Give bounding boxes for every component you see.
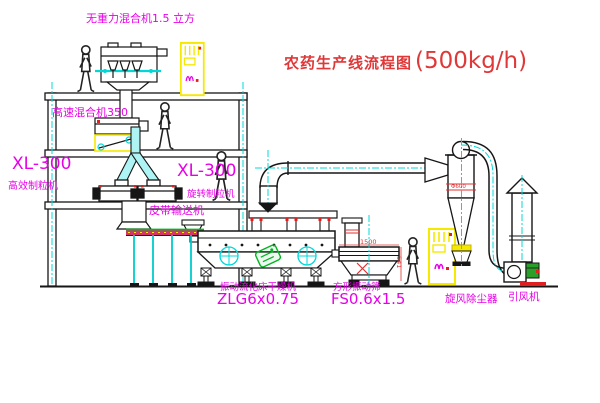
draft-fan-machine <box>504 262 546 286</box>
label-granulator-right-name: 旋转制粒机 <box>187 190 235 200</box>
dryer-exhaust-duct <box>255 150 432 205</box>
person-figure <box>77 46 94 92</box>
diagram-title: 农药生产线流程图 (500kg/h) <box>284 48 527 74</box>
process-flow-diagram: 农药生产线流程图 (500kg/h) 无重力混合机1.5 立方 高速混合机350… <box>0 0 600 403</box>
label-granulator-right-model: XL-300 <box>177 163 236 180</box>
fluid-bed-dryer-machine <box>198 203 337 286</box>
dimension-sieve-height: 541 <box>395 256 403 268</box>
person-figure <box>156 103 173 149</box>
dimension-cyclone-diameter: Φ600 <box>451 184 466 190</box>
label-gravity-mixer: 无重力混合机1.5 立方 <box>86 13 195 24</box>
label-fan: 引风机 <box>508 292 540 303</box>
control-cabinet-top <box>181 43 204 95</box>
title-capacity: (500kg/h) <box>415 48 527 74</box>
person-figure <box>404 238 421 284</box>
dimension-sieve-length: 1500 <box>360 238 377 246</box>
granulator-machines <box>93 180 182 201</box>
label-high-speed-mixer: 高速混合机350 <box>52 107 128 118</box>
label-granulator-left-name: 高效制粒机 <box>8 182 58 192</box>
label-belt-conveyor: 皮带输送机 <box>149 205 204 216</box>
label-cyclone: 旋风除尘器 <box>445 294 498 305</box>
label-sieve-model: FS0.6x1.5 <box>331 292 405 307</box>
control-cabinet-right <box>429 229 455 284</box>
label-granulator-left-model: XL-300 <box>12 156 71 173</box>
title-text: 农药生产线流程图 <box>284 52 412 73</box>
label-dryer-model: ZLG6x0.75 <box>217 292 299 307</box>
vibrating-sieve-machine <box>332 215 401 285</box>
